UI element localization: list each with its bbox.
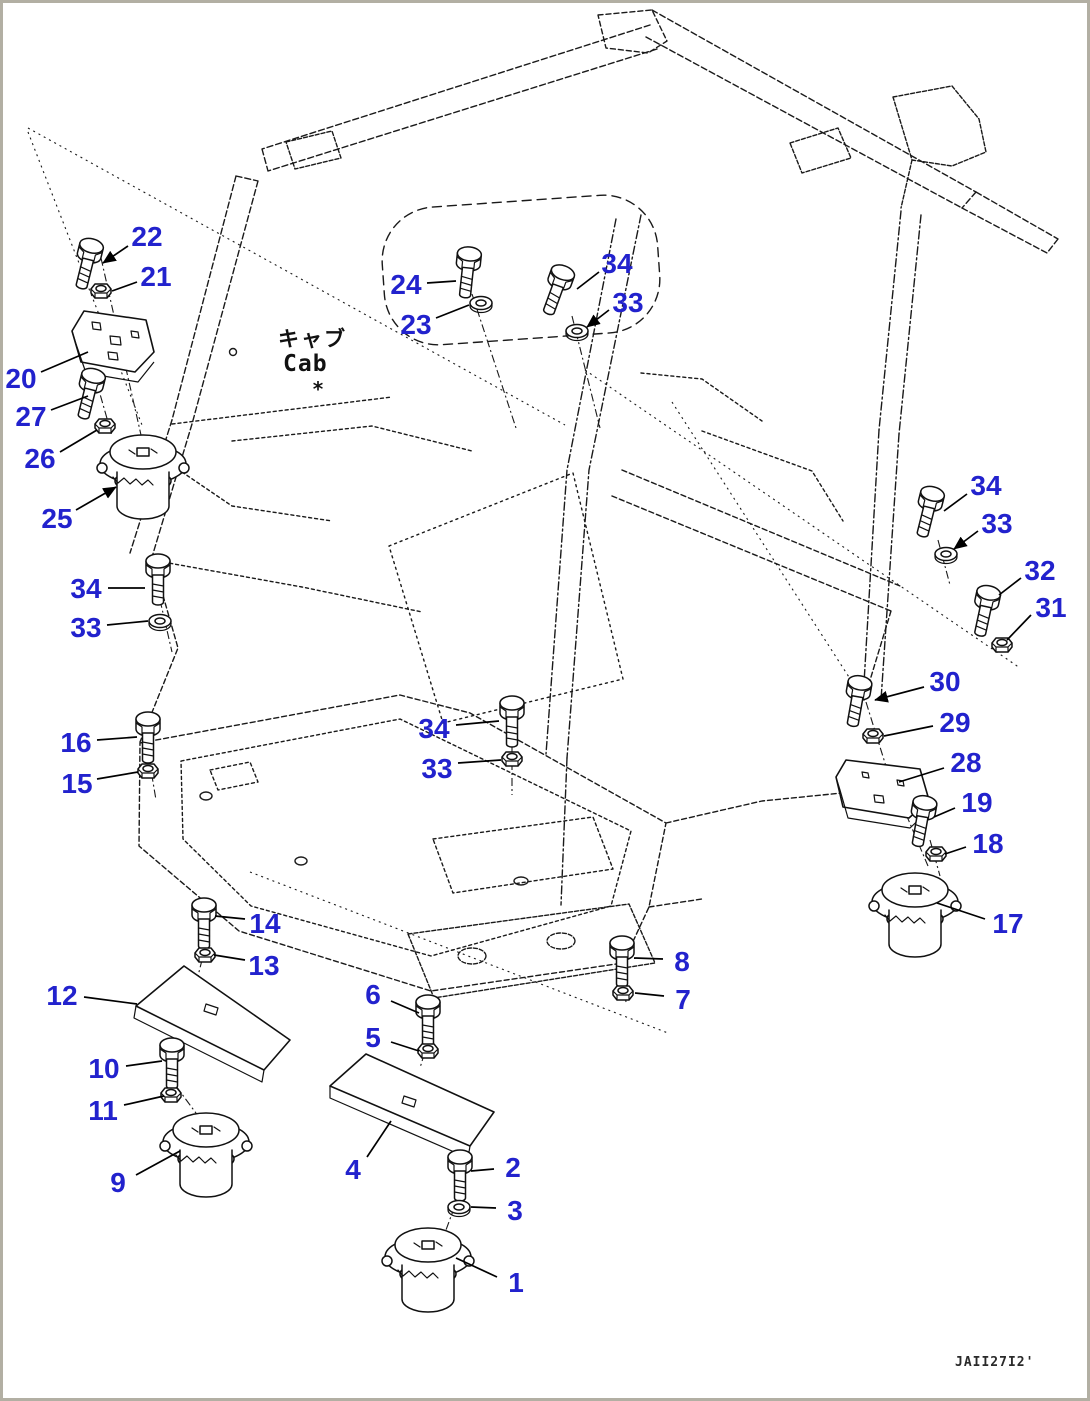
callout-number-34-mid: 34 (418, 713, 450, 744)
callout-number-30: 30 (929, 666, 960, 697)
callout-leader-8 (634, 958, 663, 959)
callout-number-34-left: 34 (70, 573, 102, 604)
callout-number-21: 21 (140, 261, 171, 292)
cab-label-en: Cab (283, 351, 328, 377)
part-nut-33-mid (502, 752, 522, 766)
part-nut-26 (95, 419, 115, 433)
callout-number-34-right: 34 (970, 470, 1002, 501)
callout-number-31: 31 (1035, 592, 1066, 623)
page-border (2, 2, 1089, 1400)
callout-number-6: 6 (365, 979, 381, 1010)
cab-label-jp: キャブ (278, 327, 347, 351)
callout-number-11: 11 (88, 1095, 118, 1126)
callout-number-18: 18 (972, 828, 1003, 859)
callout-number-10: 10 (88, 1053, 119, 1084)
callout-number-12: 12 (46, 980, 77, 1011)
part-nut-13 (195, 948, 215, 962)
callout-number-22: 22 (131, 221, 162, 252)
callout-number-2: 2 (505, 1152, 521, 1183)
part-nut-21 (91, 284, 111, 298)
part-nut-11 (161, 1088, 181, 1102)
callout-number-15: 15 (61, 768, 92, 799)
part-washer-33-left (149, 615, 171, 631)
callout-number-27: 27 (15, 401, 46, 432)
callout-number-32: 32 (1024, 555, 1055, 586)
callout-number-20: 20 (5, 363, 36, 394)
part-washer-33-top (566, 325, 588, 341)
part-nut-29 (863, 729, 883, 743)
part-washer-33-right (935, 548, 957, 564)
callout-number-8: 8 (674, 946, 690, 977)
callout-number-25: 25 (41, 503, 72, 534)
diagram-frame: 2221202726252423343334333231302928191817… (0, 0, 1090, 1401)
callout-number-23: 23 (400, 309, 431, 340)
callout-number-33-right: 33 (981, 508, 1012, 539)
drawing-number: JAII27I2' (955, 1355, 1034, 1370)
asterisk-mark: * (312, 377, 324, 401)
callout-number-33-left: 33 (70, 612, 101, 643)
callout-number-33-mid: 33 (421, 753, 452, 784)
part-nut-5 (418, 1044, 438, 1058)
callout-number-5: 5 (365, 1022, 381, 1053)
callout-number-19: 19 (961, 787, 992, 818)
callout-number-24: 24 (390, 269, 422, 300)
callout-number-28: 28 (950, 747, 981, 778)
part-nut-7 (613, 986, 633, 1000)
callout-number-17: 17 (992, 908, 1023, 939)
callout-number-13: 13 (248, 950, 279, 981)
part-washer-3 (448, 1201, 470, 1217)
callout-number-1: 1 (508, 1267, 524, 1298)
cab-parts-diagram: 2221202726252423343334333231302928191817… (0, 0, 1090, 1401)
part-nut-31 (992, 638, 1012, 652)
part-nut-15 (138, 764, 158, 778)
callout-number-29: 29 (939, 707, 970, 738)
callout-leader-3 (471, 1207, 496, 1208)
callout-number-9: 9 (110, 1167, 126, 1198)
callout-number-26: 26 (24, 443, 55, 474)
part-washer-23 (470, 297, 492, 313)
callout-number-34-top: 34 (601, 248, 633, 279)
part-nut-18 (926, 847, 946, 861)
callout-number-16: 16 (60, 727, 91, 758)
callout-number-33-top: 33 (612, 287, 643, 318)
callout-number-4: 4 (345, 1154, 361, 1185)
callout-number-3: 3 (507, 1195, 523, 1226)
callout-number-14: 14 (249, 908, 281, 939)
callout-number-7: 7 (675, 984, 691, 1015)
